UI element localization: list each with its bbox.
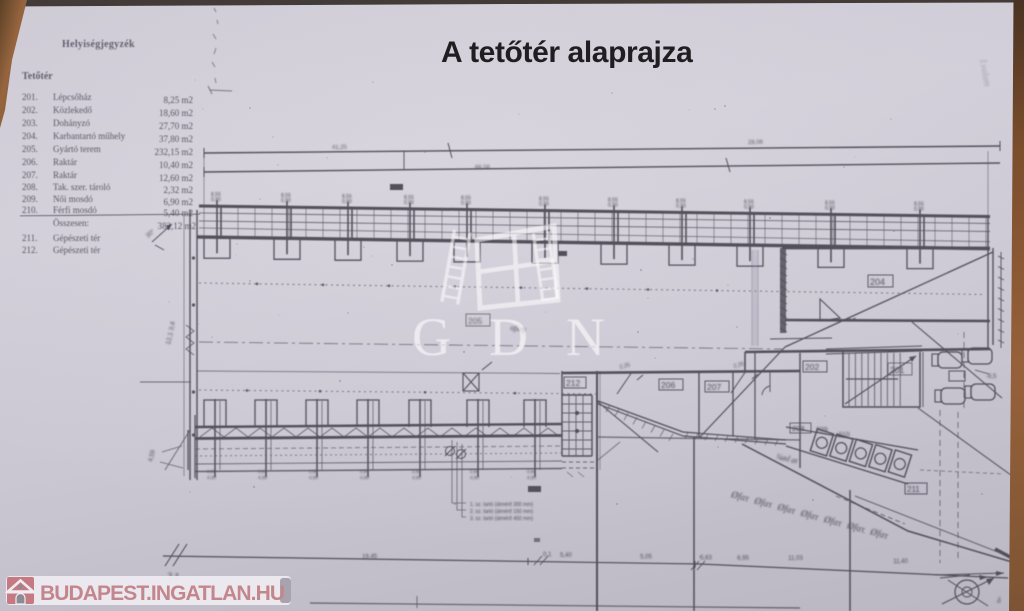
svg-text:201: 201 <box>890 365 904 375</box>
svg-text:0,90: 0,90 <box>258 469 267 474</box>
svg-text:0,90: 0,90 <box>608 203 618 209</box>
svg-text:37,80 m2: 37,80 m2 <box>159 134 193 144</box>
svg-text:4,50: 4,50 <box>360 475 369 480</box>
svg-text:232,15 m2: 232,15 m2 <box>154 147 193 157</box>
svg-text:5,40 m2: 5,40 m2 <box>163 208 193 218</box>
svg-text:δ: δ <box>997 596 1001 605</box>
svg-text:12,1 3,4: 12,1 3,4 <box>165 321 177 346</box>
svg-text:28,06: 28,06 <box>748 140 764 146</box>
svg-text:Øfατ: Øfατ <box>868 526 890 542</box>
svg-text:204: 204 <box>870 277 885 287</box>
svg-text:0,90: 0,90 <box>281 198 291 204</box>
svg-text:2,32 m2: 2,32 m2 <box>163 185 193 195</box>
svg-text:209.: 209. <box>22 194 38 204</box>
svg-text:3. sz. tartó (átmérő 450 mm): 3. sz. tartó (átmérő 450 mm) <box>470 516 533 522</box>
svg-text:Gépészeti tér: Gépészeti tér <box>53 245 100 255</box>
svg-text:0,1: 0,1 <box>543 552 552 558</box>
svg-text:6,90 m2: 6,90 m2 <box>163 197 193 207</box>
svg-text:4,50: 4,50 <box>412 475 421 480</box>
svg-text:382,12 m2: 382,12 m2 <box>157 221 196 231</box>
svg-text:11,40: 11,40 <box>893 559 908 565</box>
svg-text:BUDAPEST.INGATLAN.HU: BUDAPEST.INGATLAN.HU <box>40 582 284 605</box>
svg-text:0,90: 0,90 <box>470 469 479 474</box>
svg-text:1. sz. tartó (átmérő 300 mm): 1. sz. tartó (átmérő 300 mm) <box>470 502 533 508</box>
svg-text:5,40: 5,40 <box>560 553 572 559</box>
svg-text:0,90: 0,90 <box>461 201 471 207</box>
svg-text:Karbantartó műhely: Karbantartó műhely <box>53 131 126 141</box>
svg-text:210: 210 <box>838 432 850 439</box>
svg-text:206.: 206. <box>22 157 38 167</box>
svg-text:0,90: 0,90 <box>342 199 352 205</box>
svg-text:5,05: 5,05 <box>640 554 652 560</box>
svg-text:0,90: 0,90 <box>539 202 549 208</box>
svg-text:41,25: 41,25 <box>332 145 348 151</box>
svg-text:207: 207 <box>707 382 721 392</box>
svg-text:4,50: 4,50 <box>258 475 267 480</box>
svg-text:GDN: GDN <box>412 307 643 367</box>
svg-text:30°: 30° <box>145 229 156 240</box>
svg-text:Øfατ: Øfατ <box>798 508 820 524</box>
svg-text:0,90: 0,90 <box>676 203 686 209</box>
svg-text:19,45: 19,45 <box>362 554 378 560</box>
svg-text:18,60 m2: 18,60 m2 <box>159 108 193 118</box>
svg-text:Gyártó terem: Gyártó terem <box>53 144 101 154</box>
svg-text:Raktár: Raktár <box>53 170 77 180</box>
svg-text:0,90: 0,90 <box>207 469 216 474</box>
svg-text:201.: 201. <box>22 92 38 102</box>
svg-text:8,25 m2: 8,25 m2 <box>163 95 193 105</box>
svg-text:0,90: 0,90 <box>309 469 318 474</box>
svg-text:12,60 m2: 12,60 m2 <box>159 173 193 183</box>
svg-text:0,90: 0,90 <box>404 200 414 206</box>
svg-text:211: 211 <box>907 485 920 494</box>
svg-text:0,90: 0,90 <box>211 197 221 203</box>
svg-text:Øfατ: Øfατ <box>775 501 797 517</box>
svg-text:Dohányzó: Dohányzó <box>53 118 90 128</box>
svg-text:Gépészeti tér: Gépészeti tér <box>53 233 100 243</box>
svg-text:5,63: 5,63 <box>700 555 712 561</box>
svg-text:202: 202 <box>805 362 819 372</box>
svg-text:Helyiségjegyzék: Helyiségjegyzék <box>62 39 135 50</box>
svg-text:4,50: 4,50 <box>207 475 216 480</box>
svg-text:4,50: 4,50 <box>309 475 318 480</box>
svg-text:I.valam: I.valam <box>978 58 993 88</box>
svg-text:66,56: 66,56 <box>475 165 491 171</box>
svg-text:0,90: 0,90 <box>360 469 369 474</box>
svg-text:Közlekedő: Közlekedő <box>53 105 92 115</box>
svg-text:212.: 212. <box>22 245 38 255</box>
svg-text:207.: 207. <box>22 170 38 180</box>
svg-text:Női mosdó: Női mosdó <box>53 194 93 204</box>
svg-text:204.: 204. <box>22 131 38 141</box>
svg-text:211.: 211. <box>22 233 37 243</box>
svg-text:4,50: 4,50 <box>527 475 536 480</box>
svg-text:Férfi mosdó: Férfi mosdó <box>53 205 97 215</box>
svg-text:210.: 210. <box>22 205 38 215</box>
svg-text:Tetőtér: Tetőtér <box>22 71 53 82</box>
svg-text:0,90: 0,90 <box>825 205 835 211</box>
svg-text:202.: 202. <box>22 105 38 115</box>
svg-text:205.: 205. <box>22 144 38 154</box>
svg-text:Összesen:: Összesen: <box>53 218 89 228</box>
svg-text:2,25: 2,25 <box>733 361 745 370</box>
svg-text:Øfατ: Øfατ <box>752 495 774 511</box>
svg-text:0,90: 0,90 <box>527 469 536 474</box>
svg-text:203.: 203. <box>22 118 38 128</box>
svg-text:208: 208 <box>792 424 805 433</box>
svg-text:Tak. szer. tároló: Tak. szer. tároló <box>53 182 111 192</box>
svg-text:212: 212 <box>566 378 580 388</box>
svg-text:6,95: 6,95 <box>737 556 749 562</box>
svg-text:Øfατ: Øfατ <box>729 489 751 505</box>
svg-text:-8,5: -8,5 <box>986 374 997 380</box>
svg-text:4,59: 4,59 <box>148 449 157 462</box>
svg-text:10,40 m2: 10,40 m2 <box>159 160 193 170</box>
svg-text:27,70 m2: 27,70 m2 <box>159 121 193 131</box>
svg-text:209: 209 <box>816 427 828 434</box>
svg-text:Raktár: Raktár <box>53 157 77 167</box>
svg-text:0,90: 0,90 <box>914 207 924 213</box>
svg-text:Øfατ: Øfατ <box>822 514 844 530</box>
svg-text:206: 206 <box>661 380 675 390</box>
svg-text:0,90: 0,90 <box>412 469 421 474</box>
svg-text:4,50: 4,50 <box>470 475 479 480</box>
svg-text:Lépcsőház: Lépcsőház <box>53 92 91 102</box>
svg-text:11,03: 11,03 <box>788 556 803 562</box>
svg-text:208.: 208. <box>22 182 38 192</box>
svg-text:2. sz. tartó (átmérő 150 mm): 2. sz. tartó (átmérő 150 mm) <box>470 509 533 515</box>
svg-text:0,90: 0,90 <box>744 204 754 210</box>
svg-text:Øfατ: Øfατ <box>845 520 867 536</box>
